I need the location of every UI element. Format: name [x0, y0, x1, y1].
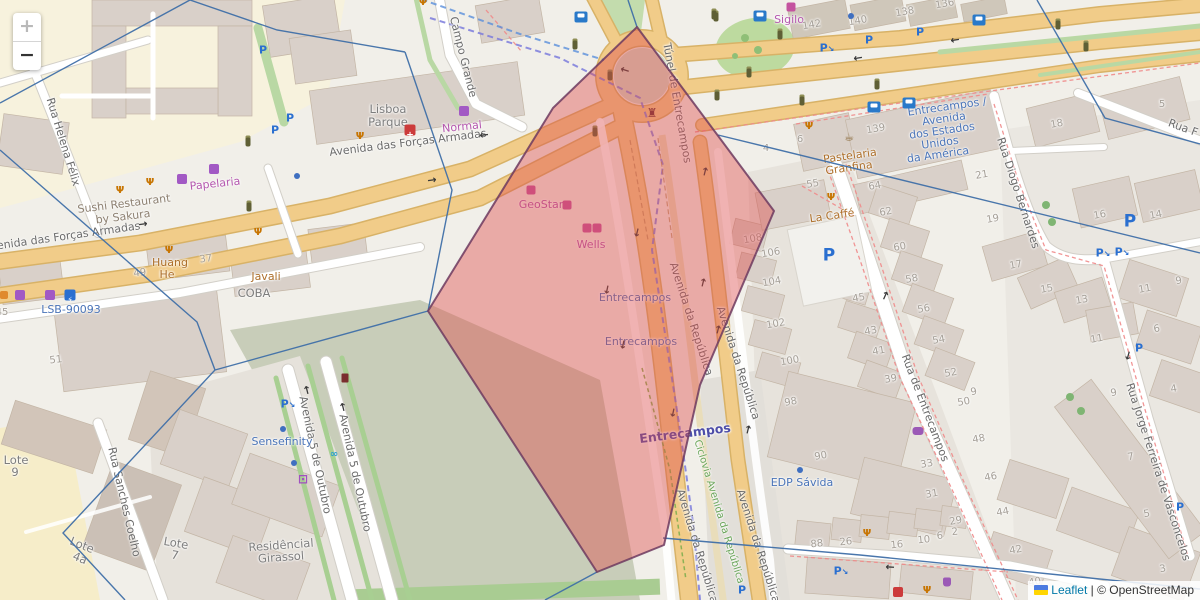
leaflet-link[interactable]: Leaflet	[1051, 583, 1087, 597]
zoom-control: + −	[13, 13, 41, 70]
map-canvas[interactable]: Avenida das Forças ArmadasAvenida das Fo…	[0, 0, 1200, 600]
attribution-separator: |	[1087, 583, 1097, 597]
zoom-in-button[interactable]: +	[13, 13, 41, 42]
attribution-bar: Leaflet | © OpenStreetMap	[1028, 581, 1200, 600]
leaflet-flag-icon	[1034, 585, 1048, 595]
map-tiles	[0, 0, 1200, 600]
zoom-out-button[interactable]: −	[13, 42, 41, 70]
osm-attribution: © OpenStreetMap	[1097, 583, 1194, 597]
